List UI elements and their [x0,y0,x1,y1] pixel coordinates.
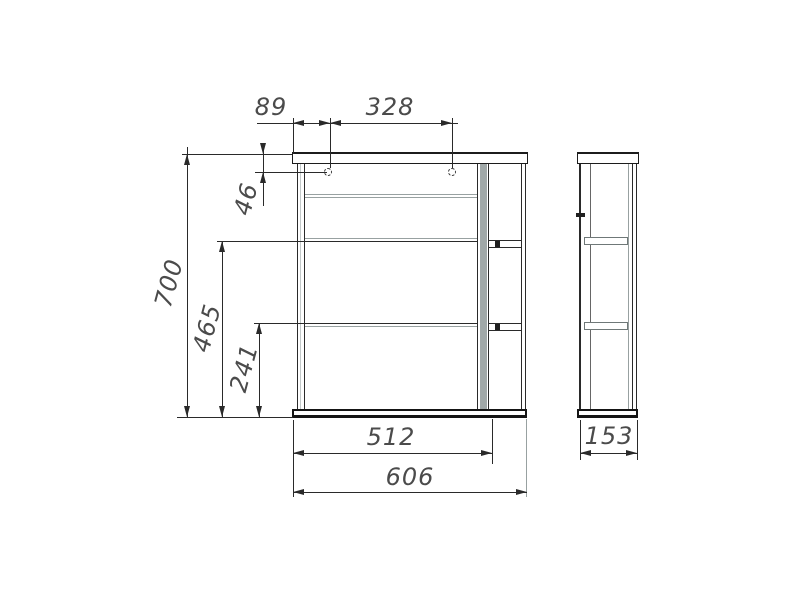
technical-drawing: 89 328 700 465 241 46 512 606 153 [0,0,800,600]
extension-line [217,241,477,242]
dimension-line-241 [259,323,260,417]
extension-line [293,420,294,497]
extension-line [526,419,527,497]
right-shelf-bottom-line [489,247,521,248]
right-shelf-top-line [489,240,521,241]
dimension-line-606 [293,492,527,493]
front-right-panel-inner-line [521,164,522,410]
arrowhead [184,406,190,417]
dimension-text-89: 89 [255,93,288,121]
arrowhead [330,120,341,126]
arrowhead [481,450,492,456]
right-shelf-top-line [489,323,521,324]
extension-line [452,118,453,168]
arrowhead [580,450,591,456]
arrowhead [219,241,225,252]
side-shelf-profile [584,322,628,330]
arrowhead [516,489,527,495]
shelf-line [305,326,477,327]
extension-line [637,420,638,460]
right-shelf-bottom-line [489,330,521,331]
extension-line [254,323,477,324]
front-right-panel-line [525,164,526,410]
dimension-text-241: 241 [224,341,264,395]
extension-line [492,419,493,464]
arrowhead [293,489,304,495]
dimension-text-700: 700 [149,256,189,310]
arrowhead [256,323,262,334]
dimension-line-700 [187,147,188,417]
side-front-edge-line [579,164,581,410]
arrowhead [260,143,266,154]
front-partition-line-left [477,164,478,410]
side-back-inner-line [628,164,629,410]
arrowhead [219,406,225,417]
side-door-inner-line [590,164,591,410]
dimension-text-465: 465 [187,301,227,355]
extension-line [177,417,293,418]
dimension-line-465 [222,241,223,417]
dimension-line [257,123,458,124]
arrowhead [260,172,266,183]
arrowhead [319,120,330,126]
arrowhead [626,450,637,456]
dimension-text-606: 606 [386,463,435,491]
front-door-edge-line [304,164,305,410]
front-partition-line-right [488,164,489,410]
side-shelf-profile [584,237,628,245]
front-top-board [292,152,528,164]
dimension-line-512 [293,453,492,454]
dimension-text-512: 512 [367,423,416,451]
shelf-line [305,238,477,239]
arrowhead [441,120,452,126]
dimension-text-328: 328 [366,93,415,121]
side-top-board [577,152,639,164]
right-shelf-support [495,241,500,247]
arrowhead [293,450,304,456]
hanger-hole [448,168,456,176]
dimension-text-46: 46 [228,180,263,219]
front-left-panel-line [297,164,298,410]
right-shelf-support [495,324,500,330]
front-bottom-board [292,409,527,418]
arrowhead [256,406,262,417]
arrowhead [293,120,304,126]
front-partition-band [480,164,487,410]
side-hinge-mark [576,213,585,217]
dimension-text-153: 153 [585,422,634,450]
shelf-line [305,197,477,198]
front-left-panel-inner-line [300,164,301,410]
shelf-line [305,194,477,195]
side-back-panel-line [636,164,637,410]
side-back-panel-line [632,164,633,410]
arrowhead [184,154,190,165]
side-bottom-board [577,409,638,418]
extension-line [182,154,292,155]
